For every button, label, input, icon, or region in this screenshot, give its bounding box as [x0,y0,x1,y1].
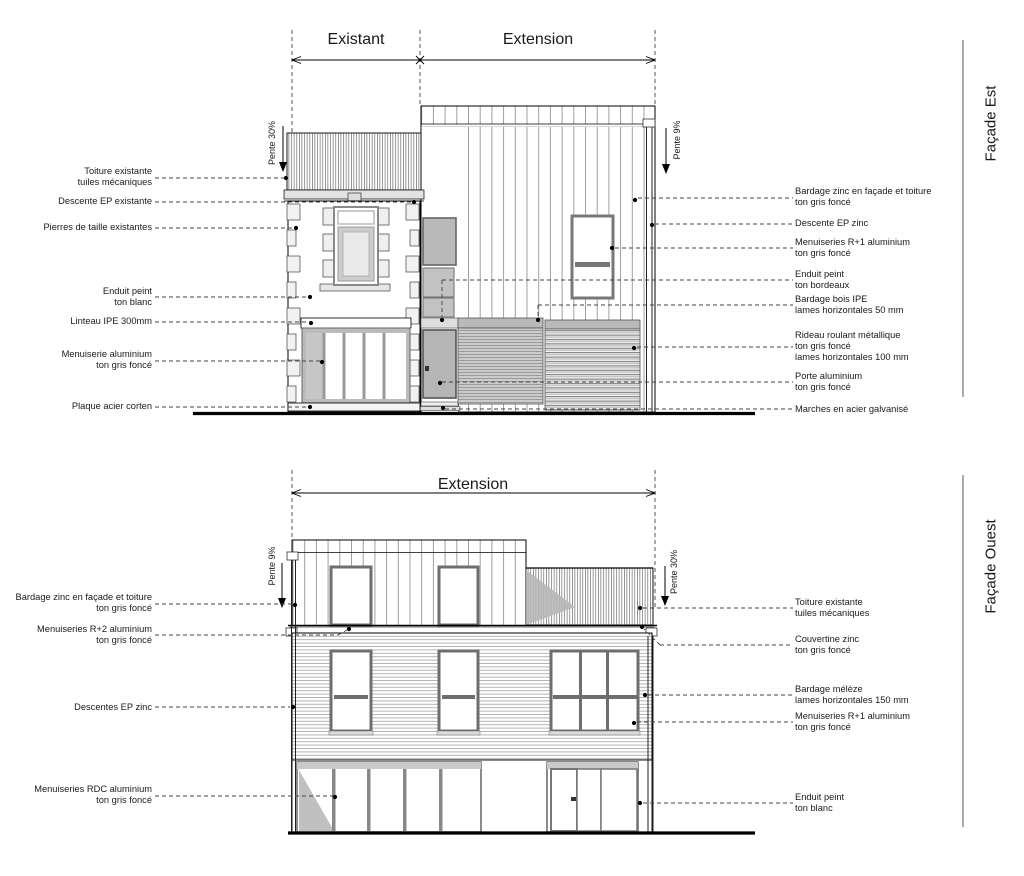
label-couvertine-zinc: Couvertine zinc ton gris foncé [795,634,1020,656]
label-enduit-blanc-est: Enduit peint ton blanc [0,286,152,308]
pente-est-left: Pente 30% [267,113,277,173]
plaque-acier-corten [288,403,420,411]
dim-label-extension-est: Extension [478,31,598,49]
menuiserie-rdc-ouest [297,762,481,832]
label-marches-acier: Marches en acier galvanisé [795,404,1020,415]
porte-aluminium [423,330,456,398]
label-bardage-zinc-est: Bardage zinc en façade et toiture ton gr… [795,186,1020,208]
elevation-linework [0,0,1024,876]
facade-est-drawing [155,30,793,414]
label-toiture-existante: Toiture existante tuiles mécaniques [0,166,152,188]
fenetre-r1-2 [439,651,478,731]
menuiserie-rdc-est [302,328,410,403]
pente-ouest-left: Pente 9% [267,536,277,596]
label-bardage-zinc-ouest: Bardage zinc en façade et toiture ton gr… [0,592,152,614]
label-enduit-blanc-ouest: Enduit peint ton blanc [795,792,1020,814]
label-toiture-existante-ouest: Toiture existante tuiles mécaniques [795,597,1020,619]
label-plaque-acier-corten: Plaque acier corten [0,401,152,412]
label-pierres-de-taille: Pierres de taille existantes [0,222,152,233]
fenetre-r2-2 [439,567,478,625]
fenetre-r1-1 [331,651,371,731]
label-porte-aluminium: Porte aluminium ton gris foncé [795,371,1020,393]
facade-est-title: Façade Est [983,64,1000,184]
label-menuiserie-aluminium: Menuiserie aluminium ton gris foncé [0,349,152,371]
label-menuiseries-r1-est: Menuiseries R+1 aluminium ton gris foncé [795,237,1020,259]
label-enduit-bordeaux: Enduit peint ton bordeaux [795,269,1020,291]
label-rideau-roulant: Rideau roulant métallique ton gris foncé… [795,330,1020,363]
label-bardage-bois-ipe: Bardage bois IPE lames horizontales 50 m… [795,294,1020,316]
toiture-existante [287,133,421,190]
drawing-sheet: Existant Extension Extension Façade Est … [0,0,1024,876]
etage-r2-zinc [292,540,526,625]
extension-est [419,106,655,412]
marches-acier [421,402,458,406]
fenetre-r2-1 [331,567,371,625]
etage-r1-meleze [292,633,652,760]
porte-rdc-ouest [547,762,638,832]
dim-label-existant: Existant [296,31,416,49]
rdc-ouest [292,760,652,832]
linteau-ipe [301,318,411,328]
dim-label-extension-ouest: Extension [413,476,533,494]
maison-existante [284,133,424,412]
label-descentes-ep-zinc: Descentes EP zinc [0,702,152,713]
rideau-roulant-1 [458,318,543,404]
label-bardage-meleze: Bardage mélèze lames horizontales 150 mm [795,684,1020,706]
pente-est-right: Pente 9% [672,110,682,170]
label-descente-ep-zinc: Descente EP zinc [795,218,1020,229]
pente-ouest-right: Pente 30% [669,542,679,602]
fenetre-r1-3 [551,651,638,731]
facade-ouest-drawing [155,470,793,833]
label-menuiseries-rdc: Menuiseries RDC aluminium ton gris foncé [0,784,152,806]
label-linteau-ipe: Linteau IPE 300mm [0,316,152,327]
fenetre-r1-est [572,216,613,298]
rideau-roulant-2 [545,320,640,410]
label-menuiseries-r2: Menuiseries R+2 aluminium ton gris foncé [0,624,152,646]
label-descente-ep-existante: Descente EP existante [0,196,152,207]
label-menuiseries-r1-ouest: Menuiseries R+1 aluminium ton gris foncé [795,711,1020,733]
toiture-existante-ouest [526,568,653,625]
